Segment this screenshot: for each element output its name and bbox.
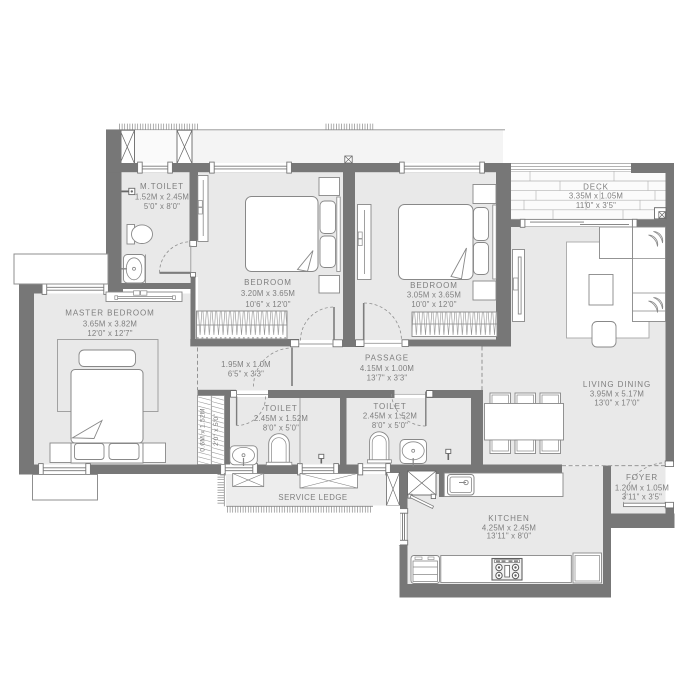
svg-text:3.65M x 3.82M: 3.65M x 3.82M	[83, 320, 137, 329]
svg-text:SERVICE LEDGE: SERVICE LEDGE	[278, 493, 347, 502]
svg-text:11'0" x 3'5": 11'0" x 3'5"	[576, 201, 616, 210]
svg-text:TOILET: TOILET	[264, 404, 297, 413]
svg-text:6'5" x 3'3": 6'5" x 3'3"	[228, 370, 264, 379]
svg-text:0.6M x 1.52M: 0.6M x 1.52M	[200, 408, 207, 452]
svg-text:8'0" x 5'0": 8'0" x 5'0"	[372, 421, 408, 430]
svg-text:5'0" x 8'0": 5'0" x 8'0"	[144, 202, 180, 211]
svg-text:PASSAGE: PASSAGE	[365, 354, 409, 363]
svg-text:8'0" x 5'0": 8'0" x 5'0"	[263, 424, 299, 433]
svg-text:3.35M x 1.05M: 3.35M x 1.05M	[569, 192, 623, 201]
svg-text:1.52M x 2.45M: 1.52M x 2.45M	[135, 192, 189, 201]
svg-text:10'0" x 12'0": 10'0" x 12'0"	[411, 300, 456, 309]
svg-text:DECK: DECK	[583, 183, 609, 192]
svg-text:4.15M x 1.00M: 4.15M x 1.00M	[360, 364, 414, 373]
svg-text:13'7" x 3'3": 13'7" x 3'3"	[367, 374, 408, 383]
svg-text:2.45M x 1.52M: 2.45M x 1.52M	[254, 414, 308, 423]
svg-text:10'6" x 12'0": 10'6" x 12'0"	[245, 300, 290, 309]
svg-text:BEDROOM: BEDROOM	[244, 278, 292, 287]
svg-text:FOYER: FOYER	[626, 473, 658, 482]
svg-text:12'0" x 12'7": 12'0" x 12'7"	[87, 329, 132, 338]
svg-text:KITCHEN: KITCHEN	[488, 514, 529, 523]
svg-text:M.TOILET: M.TOILET	[140, 182, 184, 191]
svg-text:3'11" x 3'5": 3'11" x 3'5"	[622, 493, 662, 502]
svg-text:MASTER BEDROOM: MASTER BEDROOM	[65, 309, 155, 318]
svg-text:3.20M x 3.65M: 3.20M x 3.65M	[241, 289, 295, 298]
svg-text:2.45M x 1.52M: 2.45M x 1.52M	[363, 412, 417, 421]
svg-text:LIVING DINING: LIVING DINING	[583, 380, 651, 389]
svg-text:3.95M x 5.17M: 3.95M x 5.17M	[590, 390, 644, 399]
svg-text:13'0" x 17'0": 13'0" x 17'0"	[594, 399, 639, 408]
svg-text:2'0" x 5'0": 2'0" x 5'0"	[213, 414, 220, 446]
svg-text:1.20M x 1.05M: 1.20M x 1.05M	[615, 484, 669, 493]
svg-text:TOILET: TOILET	[373, 402, 406, 411]
svg-text:13'11" x 8'0": 13'11" x 8'0"	[487, 532, 532, 541]
svg-text:BEDROOM: BEDROOM	[410, 281, 458, 290]
svg-text:3.05M x 3.65M: 3.05M x 3.65M	[407, 291, 461, 300]
svg-text:1.95M x 1.0M: 1.95M x 1.0M	[221, 360, 271, 369]
